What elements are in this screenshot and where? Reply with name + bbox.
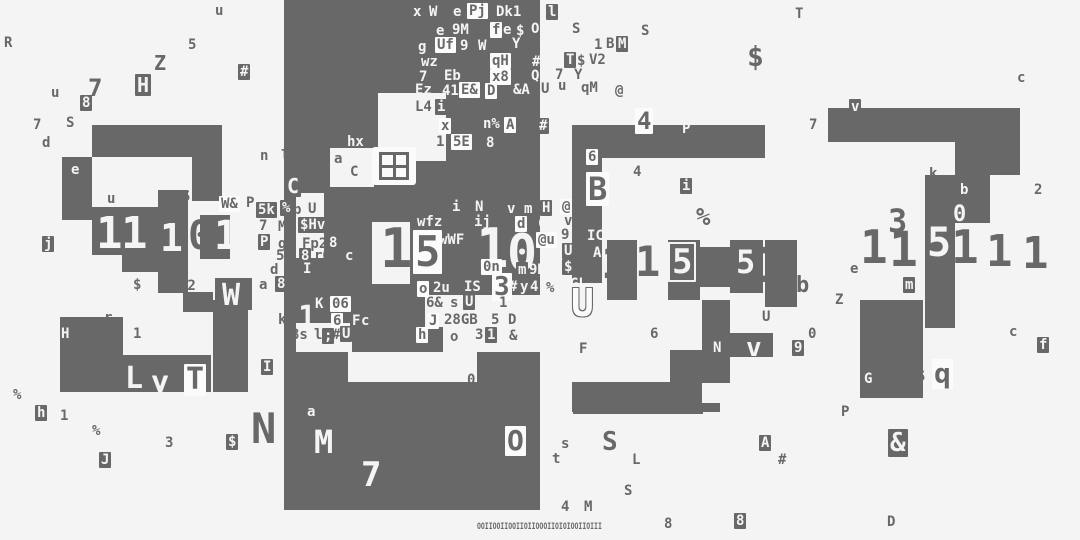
- noise-glyph: $: [226, 434, 238, 450]
- noise-glyph: 5k: [256, 202, 277, 218]
- noise-glyph: 1: [499, 296, 507, 310]
- noise-glyph: t: [296, 278, 304, 292]
- noise-glyph: 5: [736, 246, 755, 278]
- noise-glyph: Pj: [467, 3, 488, 19]
- noise-glyph: m: [524, 202, 532, 216]
- noise-glyph: 5: [413, 230, 442, 274]
- noise-glyph: i: [680, 178, 692, 194]
- noise-glyph: wWF: [439, 233, 464, 247]
- noise-glyph: y: [518, 279, 530, 295]
- noise-glyph: $: [577, 54, 585, 68]
- noise-glyph: %: [546, 281, 554, 295]
- noise-glyph: I: [261, 359, 273, 375]
- noise-glyph: U: [762, 310, 770, 324]
- noise-glyph: 0: [188, 216, 212, 256]
- noise-glyph: F: [579, 342, 587, 356]
- noise-glyph: 2u: [433, 281, 450, 295]
- noise-glyph: #: [509, 280, 517, 294]
- noise-glyph: 0: [808, 327, 816, 341]
- noise-glyph: x: [413, 5, 421, 19]
- noise-glyph: E&: [459, 82, 480, 98]
- noise-glyph: M: [616, 36, 628, 52]
- noise-glyph: l: [546, 4, 558, 20]
- noise-glyph: 1: [60, 409, 68, 423]
- noise-glyph: 8: [734, 513, 746, 529]
- noise-glyph: J: [99, 452, 111, 468]
- noise-glyph: qM: [581, 81, 598, 95]
- noise-glyph: L4: [415, 100, 432, 114]
- noise-glyph: B: [606, 37, 614, 51]
- noise-glyph: #: [238, 64, 250, 80]
- noise-glyph: a: [334, 152, 342, 166]
- noise-glyph: 8: [275, 276, 287, 292]
- noise-glyph: 1: [860, 224, 888, 270]
- dark-block: [192, 125, 222, 201]
- noise-glyph: i: [450, 199, 462, 215]
- noise-glyph: 7: [361, 458, 381, 492]
- noise-glyph: n: [260, 149, 268, 163]
- inner-dark-block: [380, 327, 443, 352]
- noise-glyph: P: [258, 234, 270, 250]
- noise-glyph: 06: [330, 296, 351, 312]
- noise-glyph: j: [42, 236, 54, 252]
- noise-glyph: S2: [179, 279, 196, 293]
- noise-glyph: U: [541, 82, 549, 96]
- noise-glyph: O: [505, 426, 526, 456]
- noise-glyph: I: [301, 261, 313, 277]
- window-grid-icon: [372, 147, 416, 185]
- noise-glyph: V2: [589, 53, 606, 67]
- noise-glyph: 6&: [426, 296, 443, 310]
- noise-glyph: s: [450, 296, 458, 310]
- noise-glyph: b: [796, 275, 809, 297]
- noise-glyph: &: [509, 329, 517, 343]
- noise-glyph: W&: [219, 196, 240, 212]
- noise-glyph: J: [427, 313, 439, 329]
- noise-glyph: H: [540, 200, 552, 216]
- noise-glyph: $Hv: [298, 217, 327, 233]
- noise-glyph: H: [61, 327, 69, 341]
- noise-glyph: 5a: [276, 249, 293, 263]
- noise-glyph: C: [285, 175, 301, 197]
- noise-glyph: v: [849, 99, 861, 115]
- noise-glyph: d: [42, 136, 50, 150]
- noise-glyph: 2: [1034, 183, 1042, 197]
- noise-glyph: S: [624, 484, 632, 498]
- noise-glyph: B: [586, 172, 609, 206]
- noise-glyph: 1: [96, 212, 123, 256]
- noise-glyph: 41: [442, 84, 459, 98]
- noise-glyph: u: [107, 192, 115, 206]
- noise-glyph: f: [490, 22, 502, 38]
- noise-glyph: @u: [536, 232, 557, 248]
- noise-glyph: 6: [586, 149, 598, 165]
- noise-glyph: @: [615, 84, 623, 98]
- noise-glyph: RO: [315, 262, 332, 276]
- noise-glyph: 9: [792, 340, 804, 356]
- noise-glyph: o: [314, 280, 322, 294]
- noise-glyph: c: [1017, 71, 1025, 85]
- noise-glyph: L: [632, 453, 640, 467]
- noise-glyph: h: [416, 327, 428, 343]
- noise-glyph: 9K: [529, 263, 546, 277]
- noise-glyph: 1: [601, 243, 626, 285]
- noise-glyph: c: [361, 314, 369, 328]
- noise-glyph: Eb: [444, 69, 461, 83]
- noise-glyph: 1: [485, 327, 497, 343]
- noise-glyph: u: [51, 86, 59, 100]
- dark-block: [572, 382, 670, 412]
- noise-glyph: 1: [986, 230, 1013, 274]
- glitch-ascii-art-canvas: uR5Z7H#u87Sdenlju5W&P5k%pUZ7M$HvPg4Fp285…: [0, 0, 1080, 540]
- noise-glyph: z: [361, 329, 369, 343]
- noise-glyph: U: [340, 326, 352, 342]
- noise-glyph: h: [35, 405, 47, 421]
- noise-glyph: 8: [664, 517, 672, 531]
- noise-glyph: k: [929, 167, 937, 181]
- noise-glyph: U: [463, 294, 475, 310]
- noise-glyph: 5: [188, 38, 196, 52]
- noise-glyph: e: [69, 162, 81, 178]
- noise-glyph: 5: [182, 190, 190, 204]
- dark-block: [213, 300, 248, 392]
- noise-glyph: wz: [421, 55, 438, 69]
- noise-glyph: u: [215, 4, 223, 18]
- noise-glyph: A: [504, 117, 516, 133]
- noise-glyph: #: [778, 453, 786, 467]
- noise-glyph: 8: [80, 95, 92, 111]
- noise-glyph: hx: [347, 135, 364, 149]
- noise-glyph: t: [552, 452, 560, 466]
- noise-glyph: 6: [650, 327, 658, 341]
- noise-glyph: qH: [490, 53, 511, 69]
- noise-glyph: b: [960, 183, 968, 197]
- noise-glyph: 3: [574, 200, 582, 214]
- noise-glyph: 3: [165, 436, 173, 450]
- noise-glyph: P: [841, 405, 849, 419]
- noise-glyph: 7: [809, 118, 817, 132]
- noise-glyph: M: [278, 220, 286, 234]
- noise-glyph: S: [602, 429, 618, 455]
- noise-glyph: 1: [214, 216, 238, 256]
- noise-glyph: c: [1009, 325, 1017, 339]
- noise-glyph: 4: [530, 280, 538, 294]
- noise-glyph: u: [558, 79, 566, 93]
- noise-glyph: #: [532, 55, 540, 69]
- noise-glyph: r: [104, 311, 112, 325]
- noise-glyph: &: [888, 429, 908, 457]
- noise-glyph: 1: [160, 219, 183, 257]
- noise-glyph: 4: [635, 108, 653, 134]
- noise-glyph: H: [135, 74, 151, 96]
- bottom-binary-line: OOIIOOIIOOIIOIIOOOIIOIOIOOIIOIII: [477, 522, 602, 532]
- noise-glyph: $: [562, 259, 574, 275]
- noise-glyph: S: [641, 24, 649, 38]
- noise-glyph: Uf: [435, 37, 456, 53]
- noise-glyph: 28GB: [444, 313, 478, 327]
- noise-glyph: 1: [757, 240, 787, 290]
- noise-glyph: %: [92, 424, 100, 438]
- noise-glyph: P: [246, 196, 254, 210]
- noise-glyph: C: [538, 217, 546, 231]
- noise-glyph: $: [747, 43, 764, 71]
- noise-glyph: D: [887, 515, 895, 529]
- noise-glyph: 1: [1022, 232, 1049, 276]
- noise-glyph: 1: [594, 38, 602, 52]
- dark-block: [955, 142, 1020, 175]
- noise-glyph: %: [696, 205, 710, 229]
- noise-glyph: 1: [121, 212, 148, 256]
- noise-glyph: 3: [475, 328, 483, 342]
- noise-glyph: Z: [835, 293, 843, 307]
- noise-glyph: 9M: [452, 23, 469, 37]
- noise-glyph: n%: [483, 117, 500, 131]
- noise-glyph: %: [13, 388, 21, 402]
- noise-glyph: 3s: [291, 328, 308, 342]
- noise-glyph: G: [864, 372, 872, 386]
- noise-glyph: b: [286, 263, 294, 277]
- noise-glyph: T: [795, 7, 803, 21]
- noise-glyph: Ez: [415, 83, 432, 97]
- noise-glyph: W: [478, 39, 486, 53]
- noise-glyph: v: [564, 214, 572, 228]
- noise-glyph: q: [932, 359, 953, 389]
- noise-glyph: e: [436, 24, 444, 38]
- noise-glyph: d: [270, 263, 278, 277]
- noise-glyph: U: [308, 202, 316, 216]
- noise-glyph: A: [759, 435, 771, 451]
- noise-glyph: M: [584, 500, 592, 514]
- dark-block: [183, 292, 213, 312]
- noise-glyph: $: [133, 278, 141, 292]
- noise-glyph: a: [307, 405, 315, 419]
- noise-glyph: 7: [33, 118, 41, 132]
- noise-glyph: o: [450, 330, 458, 344]
- dark-block: [573, 409, 703, 414]
- noise-glyph: f: [1037, 337, 1049, 353]
- window-grid-icon-horizontal-bar: [379, 165, 409, 168]
- noise-glyph: Dk1: [496, 5, 521, 19]
- noise-glyph: 5E: [451, 134, 472, 150]
- noise-glyph: 5: [917, 370, 925, 384]
- noise-glyph: Z: [327, 200, 335, 214]
- noise-glyph: i: [435, 99, 447, 115]
- noise-glyph: #: [537, 118, 549, 134]
- noise-glyph: N: [251, 408, 276, 450]
- noise-glyph: L: [125, 364, 143, 394]
- noise-glyph: 0: [334, 249, 342, 263]
- noise-glyph: l: [281, 149, 289, 163]
- noise-glyph: Y: [162, 279, 170, 293]
- noise-glyph: a: [259, 278, 267, 292]
- noise-glyph: v: [507, 202, 515, 216]
- noise-glyph: 1: [635, 241, 660, 283]
- noise-glyph: R: [4, 36, 12, 50]
- noise-glyph: D: [485, 83, 497, 99]
- noise-glyph: T: [184, 364, 206, 396]
- noise-glyph: %: [280, 200, 292, 216]
- noise-glyph: 1: [889, 226, 918, 274]
- noise-glyph: e: [850, 262, 858, 276]
- noise-glyph: k: [278, 313, 286, 327]
- noise-glyph: Q: [531, 69, 539, 83]
- noise-glyph: s: [561, 437, 569, 451]
- noise-glyph: O: [531, 22, 539, 36]
- noise-glyph: T: [564, 52, 576, 68]
- noise-glyph: Y: [512, 37, 520, 51]
- noise-glyph: K: [315, 297, 323, 311]
- noise-glyph: N: [713, 341, 721, 355]
- noise-glyph: 9: [460, 39, 468, 53]
- noise-glyph: e: [453, 5, 461, 19]
- noise-glyph: p: [293, 203, 301, 217]
- noise-glyph: g: [418, 40, 426, 54]
- noise-glyph: c: [343, 248, 355, 264]
- noise-glyph: y: [151, 368, 169, 398]
- dark-block: [60, 317, 123, 392]
- noise-glyph: S: [572, 22, 580, 36]
- noise-glyph: Z: [154, 53, 166, 73]
- noise-glyph: 1: [380, 222, 413, 276]
- noise-glyph: 1: [133, 327, 141, 341]
- noise-glyph: D: [508, 313, 516, 327]
- noise-glyph: 5: [491, 313, 499, 327]
- noise-glyph: 9: [561, 228, 569, 242]
- noise-glyph: #: [285, 297, 293, 311]
- noise-glyph: 5: [668, 242, 696, 282]
- noise-glyph: P: [682, 122, 690, 136]
- light-hole: [348, 352, 477, 382]
- noise-glyph: e: [503, 23, 511, 37]
- noise-glyph: 0: [467, 373, 475, 387]
- noise-glyph: 8: [486, 136, 494, 150]
- noise-glyph: 1: [951, 224, 979, 270]
- noise-glyph: W: [222, 281, 240, 311]
- noise-glyph: 4: [561, 500, 569, 514]
- noise-glyph: &A: [513, 83, 530, 97]
- noise-glyph: m: [903, 277, 915, 293]
- noise-glyph: M: [314, 426, 333, 458]
- noise-glyph: 5: [927, 223, 951, 263]
- noise-glyph: m: [516, 262, 528, 278]
- noise-glyph: x: [439, 118, 451, 134]
- noise-glyph: IS: [464, 280, 481, 294]
- noise-glyph: v: [746, 335, 762, 361]
- noise-glyph: W: [429, 5, 437, 19]
- noise-glyph: 1: [703, 244, 726, 282]
- dark-block: [572, 125, 765, 158]
- noise-glyph: U: [562, 243, 574, 259]
- noise-glyph: 7: [259, 219, 267, 233]
- noise-glyph: C: [350, 165, 358, 179]
- noise-glyph: U: [571, 284, 594, 322]
- noise-glyph: N: [475, 200, 483, 214]
- noise-glyph: 1: [436, 135, 444, 149]
- noise-glyph: S: [66, 116, 74, 130]
- noise-glyph: 4: [633, 165, 641, 179]
